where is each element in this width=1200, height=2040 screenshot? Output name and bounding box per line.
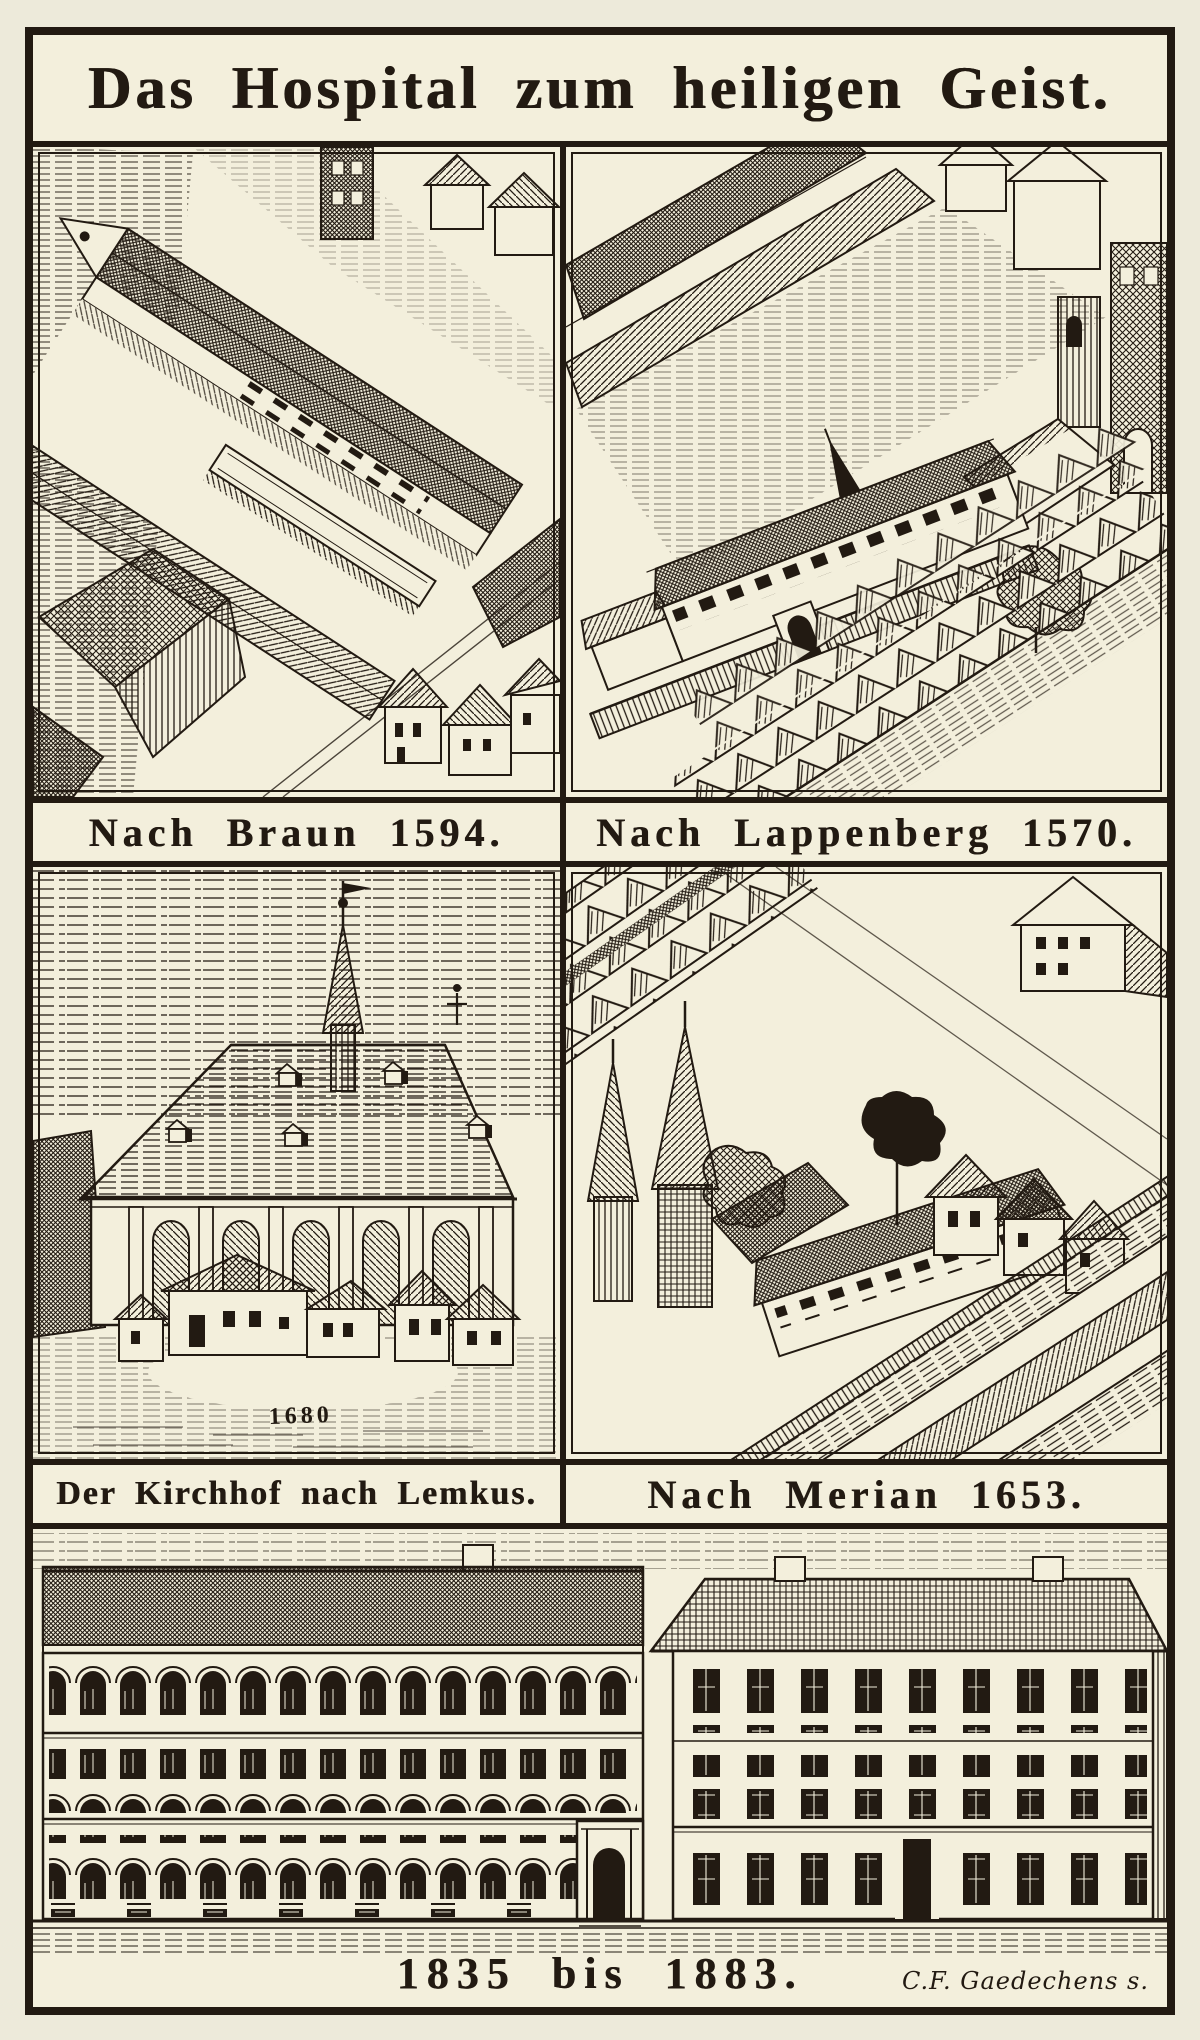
page-root: { "plate": { "title": "Das Hospital zum … — [0, 0, 1200, 2040]
engraving-braun — [33, 147, 560, 797]
plate-frame: Das Hospital zum heiligen Geist. — [25, 27, 1175, 2015]
caption-lemkus: Der Kirchhof nach Lemkus. — [33, 1465, 560, 1523]
engraving-merian — [566, 867, 1167, 1459]
caption-merian: Nach Merian 1653. — [566, 1465, 1167, 1523]
caption-braun: Nach Braun 1594. — [33, 803, 560, 861]
plate-title: Das Hospital zum heiligen Geist. — [33, 35, 1167, 141]
plate-grid: Das Hospital zum heiligen Geist. — [33, 35, 1167, 2007]
artist-signature: C.F. Gaedechens s. — [902, 1967, 1149, 1995]
engraving-modern-hospital: 1835 bis 1883. C.F. Gaedechens s. — [33, 1529, 1167, 2007]
engraving-lemkus: 1680 — [33, 867, 560, 1459]
caption-lappenberg: Nach Lappenberg 1570. — [566, 803, 1167, 861]
engraving-lappenberg — [566, 147, 1167, 797]
inscription-1680: 1680 — [268, 1402, 333, 1430]
